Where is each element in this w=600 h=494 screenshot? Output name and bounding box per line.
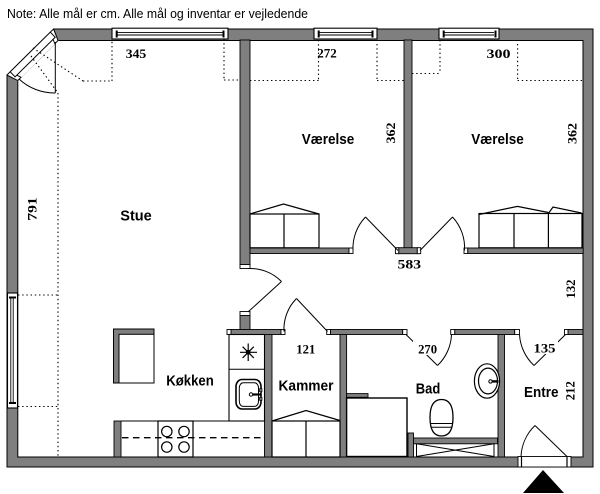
svg-text:Entre: Entre (524, 384, 559, 401)
svg-text:Note: Alle mål er cm. Alle mål: Note: Alle mål er cm. Alle mål og invent… (7, 6, 308, 21)
svg-text:270: 270 (418, 342, 437, 357)
svg-text:Stue: Stue (120, 208, 152, 225)
svg-text:Kammer: Kammer (279, 377, 334, 394)
svg-text:272: 272 (317, 46, 337, 61)
svg-text:135: 135 (534, 340, 557, 355)
svg-text:583: 583 (398, 257, 422, 272)
svg-text:Bad: Bad (416, 381, 441, 398)
svg-text:791: 791 (24, 197, 39, 221)
svg-text:300: 300 (487, 46, 511, 61)
svg-text:362: 362 (383, 123, 398, 144)
svg-text:Værelse: Værelse (302, 131, 355, 148)
svg-text:362: 362 (564, 123, 579, 144)
svg-text:121: 121 (296, 341, 315, 356)
svg-text:345: 345 (126, 46, 147, 61)
svg-text:Værelse: Værelse (471, 131, 524, 148)
svg-text:212: 212 (563, 381, 578, 400)
svg-text:132: 132 (563, 280, 578, 299)
svg-text:Køkken: Køkken (166, 372, 214, 389)
